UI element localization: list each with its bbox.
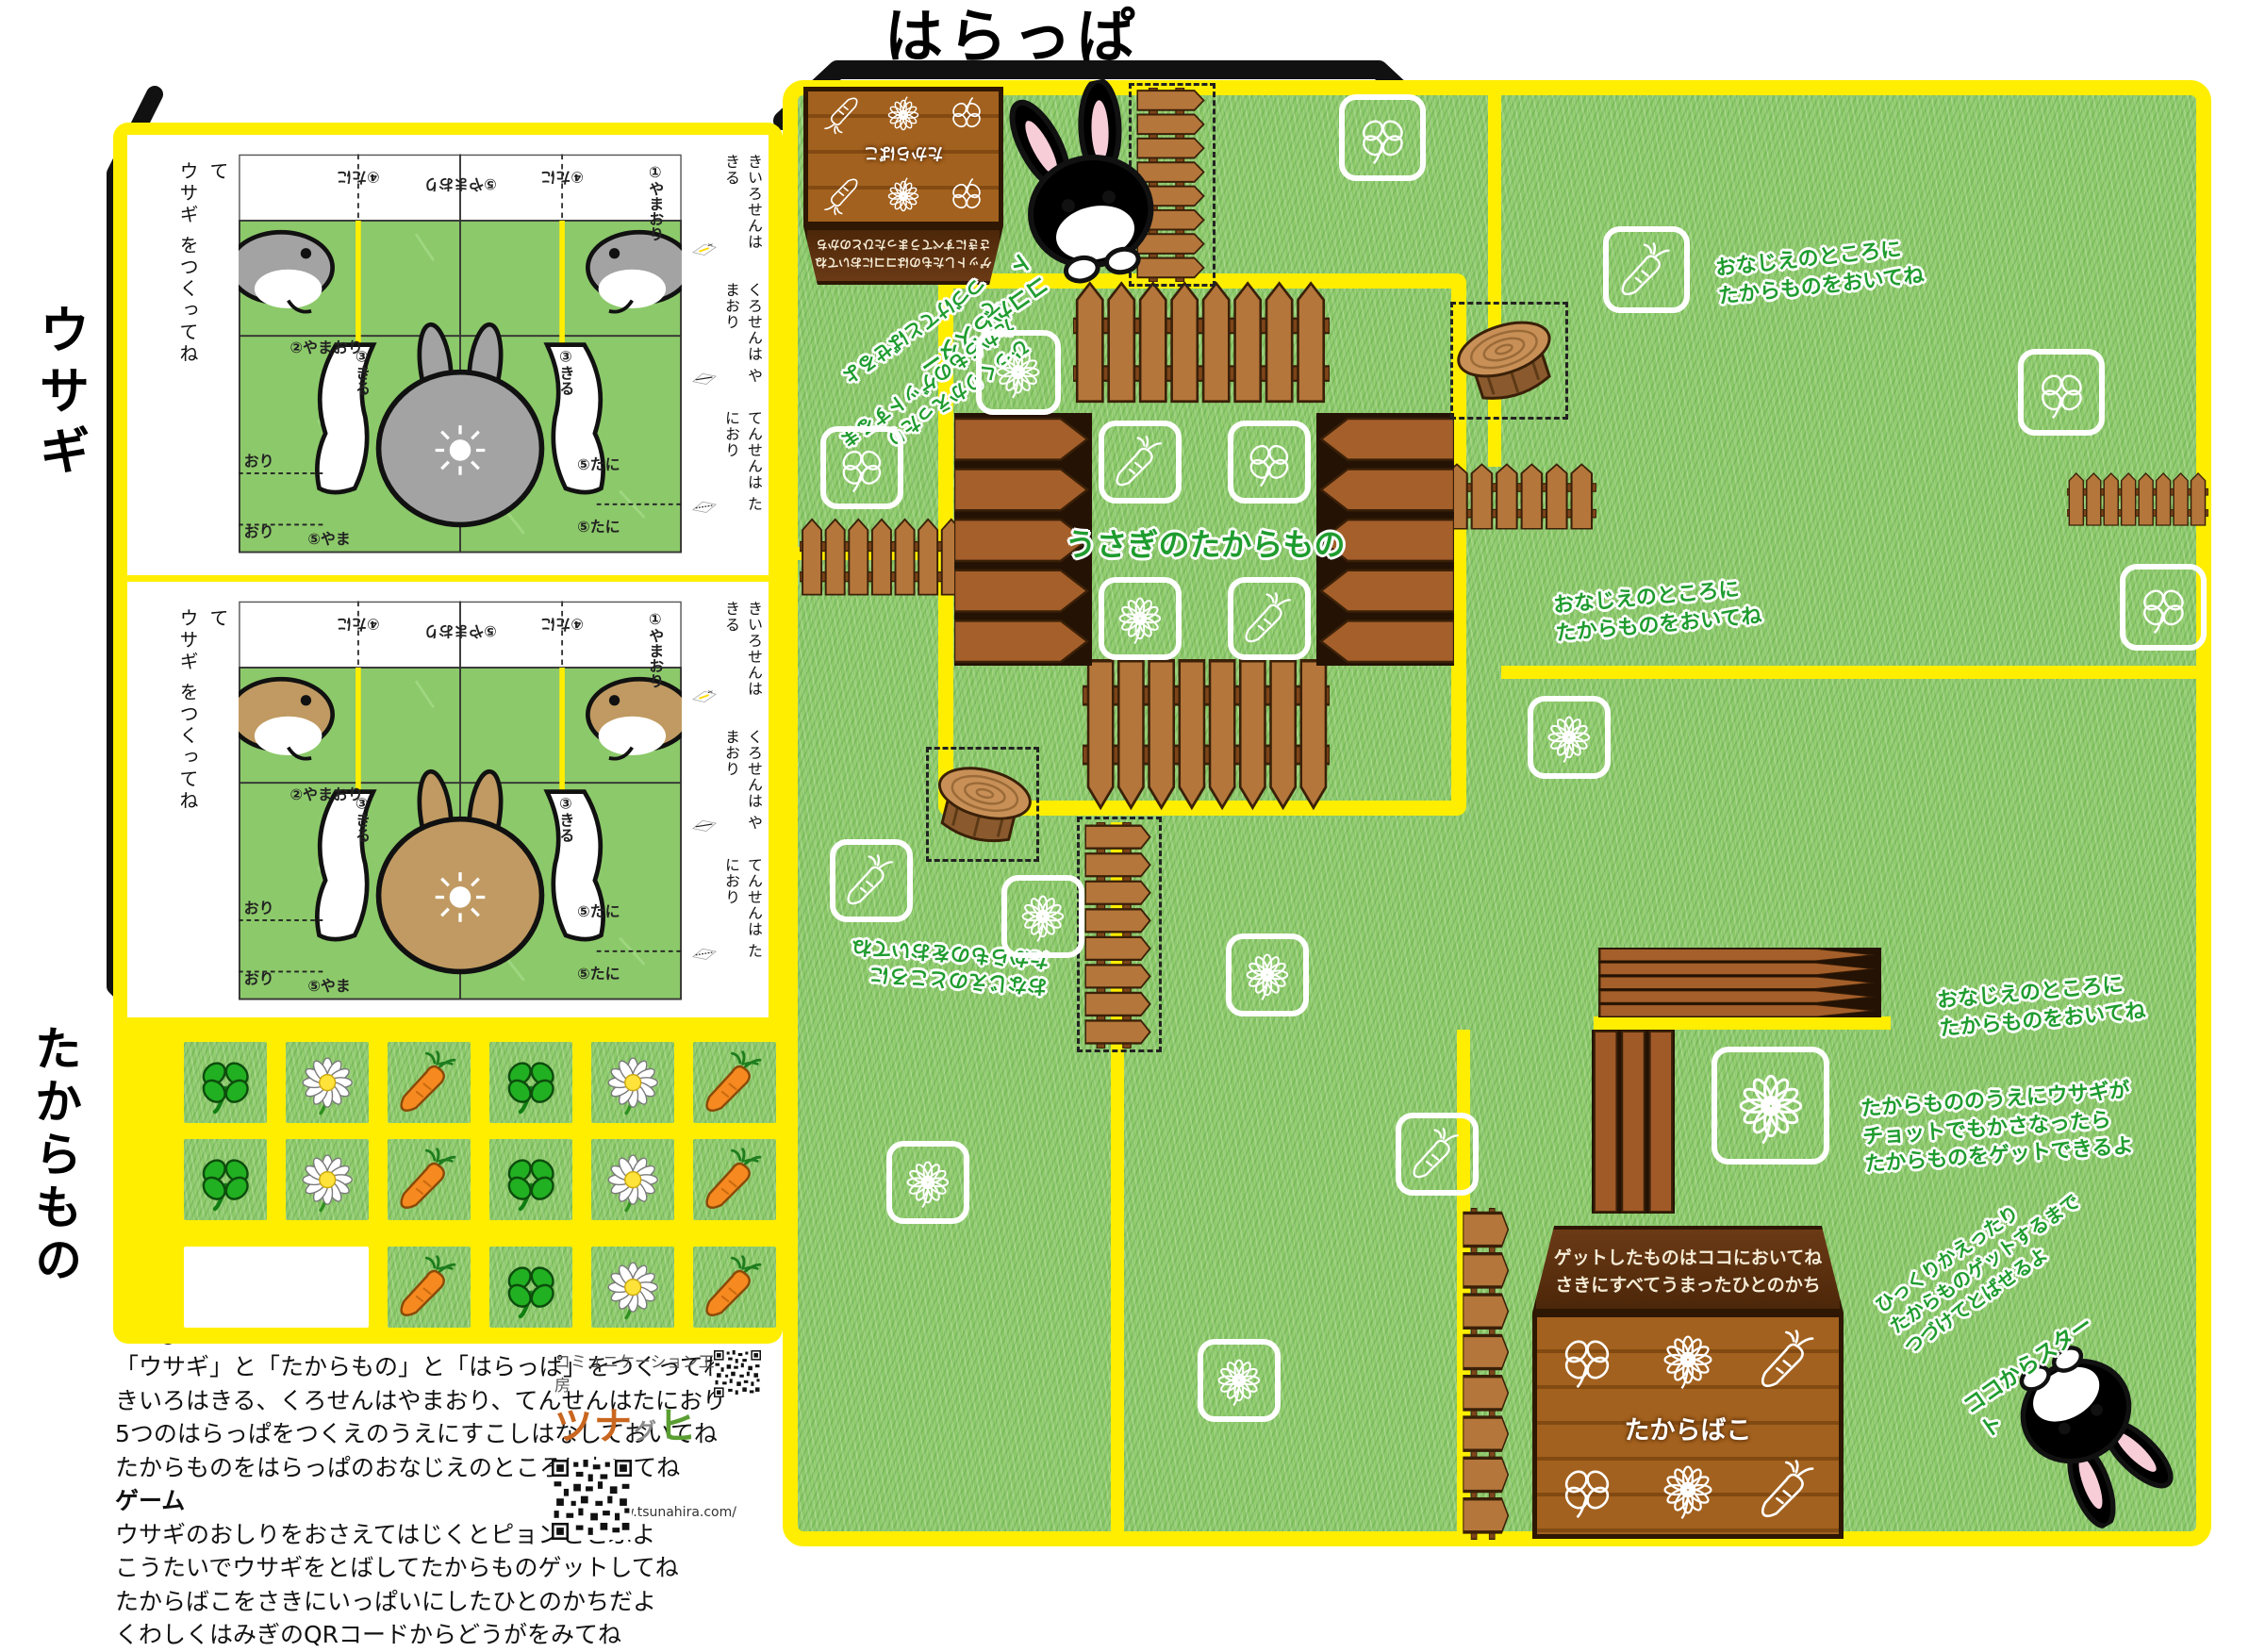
- treasure-spot-clover: [2018, 349, 2105, 436]
- svg-text:①やまおり: ①やまおり: [646, 610, 664, 688]
- fold-legend-item: てんせんは たにおり: [691, 857, 765, 968]
- svg-text:⑤やま: ⑤やま: [307, 977, 350, 995]
- treasure-box-lid: ゲットしたものはココにおいてね さきにすべてうまったひとのかち: [1532, 1226, 1844, 1313]
- carrot-outline-icon: [1410, 1127, 1464, 1181]
- clover-outline-icon: [1242, 435, 1297, 489]
- usagi-side-label: ウサギ: [23, 304, 97, 485]
- game-instruction: たからばこをさきにいっぱいにしたひとのかちだよ: [115, 1585, 766, 1619]
- clover-icon: [192, 1146, 258, 1214]
- carrot-outline-icon: [1242, 591, 1297, 646]
- treasure-spot-carrot: [1099, 421, 1182, 504]
- svg-text:④たに: ④たに: [337, 168, 379, 186]
- carrot-outline-icon: [844, 853, 899, 908]
- treasure-box-top: ゲットしたものはココにおいてね さきにすべてうまったひとのかち たからばこ: [803, 83, 1003, 285]
- tile-daisy: [286, 1139, 369, 1220]
- legend-text: てんせんは たにおり: [719, 410, 765, 521]
- carrot-engraving-icon: [1758, 1459, 1820, 1521]
- tile-daisy: [286, 1042, 369, 1123]
- clover-engraving-icon: [947, 95, 986, 135]
- tile-carrot: [388, 1247, 471, 1328]
- carrot-engraving-icon: [820, 95, 860, 135]
- svg-text:③きる: ③きる: [353, 347, 371, 395]
- svg-text:③きる: ③きる: [353, 794, 371, 842]
- treasure-spot-clover: [2120, 564, 2207, 651]
- fold-legend-item: てんせんは たにおり: [691, 410, 765, 521]
- svg-text:⑤やま: ⑤やま: [307, 530, 350, 548]
- svg-text:④たに: ④たに: [337, 615, 379, 633]
- treasure-spot-daisy: [1198, 1339, 1281, 1422]
- tile-carrot: [388, 1042, 471, 1123]
- daisy-outline-icon: [1730, 1066, 1811, 1147]
- daisy-icon: [600, 1049, 666, 1116]
- daisy-icon: [294, 1146, 360, 1214]
- rabbit-cutout-art: ①やまおり ⑤やまおり ④たに ④たに ②やまおり ③きる ③きる ⑤たに ⑤た…: [239, 142, 682, 565]
- studio-name: コミュニケーション工房: [554, 1348, 715, 1396]
- treasure-box-label: たからばこ: [808, 143, 999, 167]
- carrot-icon: [396, 1253, 462, 1321]
- clover-outline-icon: [835, 440, 889, 495]
- clover-icon: [498, 1146, 564, 1214]
- svg-text:⑤たに: ⑤たに: [577, 518, 620, 536]
- tile-clover: [489, 1247, 572, 1328]
- tile-clover: [489, 1139, 572, 1220]
- carrot-outline-icon: [1113, 435, 1167, 489]
- svg-text:おり: おり: [244, 523, 274, 541]
- clover-icon: [498, 1049, 564, 1116]
- svg-text:おり: おり: [244, 899, 274, 917]
- treasure-spot-daisy: [1099, 577, 1182, 660]
- clover-engraving-icon: [947, 176, 986, 216]
- carrot-icon: [702, 1049, 768, 1116]
- fold-legend-item: くろせんは やまおり: [691, 729, 765, 840]
- carrot-icon: [702, 1146, 768, 1214]
- fold-legend-item: きいろせんは きる: [691, 154, 765, 265]
- clover-engraving-icon: [1556, 1459, 1618, 1521]
- clover-icon: [498, 1253, 564, 1321]
- legend-text: きいろせんは きる: [719, 601, 765, 712]
- legend-text: きいろせんは きる: [719, 154, 765, 265]
- valley-fold-icon: [691, 936, 718, 968]
- tile-daisy: [591, 1247, 674, 1328]
- carrot-engraving-icon: [820, 176, 860, 216]
- svg-text:④たに: ④たに: [540, 168, 583, 186]
- clover-outline-icon: [2135, 579, 2192, 636]
- treasure-box-body: たからばこ: [1532, 1313, 1844, 1539]
- daisy-outline-icon: [990, 344, 1046, 400]
- carrot-icon: [396, 1146, 462, 1214]
- fold-legend: きいろせんは きるくろせんは やまおりてんせんは たにおり: [691, 154, 765, 559]
- daisy-engraving-icon: [884, 176, 923, 216]
- board-separator: [1501, 666, 2199, 679]
- tile-daisy: [591, 1139, 674, 1220]
- carrot-icon: [702, 1253, 768, 1321]
- treasure-box-bottom: ゲットしたものはココにおいてね さきにすべてうまったひとのかち たからばこ: [1532, 1226, 1844, 1542]
- svg-text:⑤たに: ⑤たに: [577, 965, 620, 983]
- mountain-fold-icon: [691, 808, 718, 840]
- treasure-spot-clover: [1339, 94, 1426, 181]
- courtyard-top-fence: [1073, 279, 1330, 404]
- tile-clover: [184, 1139, 267, 1220]
- valley-fold-icon: [691, 489, 718, 521]
- fold-legend: きいろせんは きるくろせんは やまおりてんせんは たにおり: [691, 601, 765, 1006]
- svg-text:⑤たに: ⑤たに: [577, 455, 620, 473]
- daisy-outline-icon: [1542, 710, 1596, 765]
- tile-carrot: [388, 1139, 471, 1220]
- clover-icon: [192, 1049, 258, 1116]
- svg-text:⑤たに: ⑤たに: [577, 902, 620, 920]
- treasure-spot-carrot: [1603, 226, 1690, 313]
- fence-bottom-right-horizontal: [1598, 948, 1881, 1017]
- clover-engraving-icon: [1556, 1329, 1618, 1391]
- fence-far-right: [2067, 471, 2208, 526]
- treasure-spot-carrot: [1396, 1113, 1479, 1196]
- treasure-box-body: たからばこ: [803, 87, 1003, 226]
- svg-text:③きる: ③きる: [556, 347, 574, 395]
- tile-blank: [184, 1247, 369, 1328]
- treasure-spot-carrot: [1228, 577, 1311, 660]
- svg-text:おり: おり: [244, 452, 274, 470]
- carrot-icon: [396, 1049, 462, 1116]
- daisy-outline-icon: [901, 1155, 955, 1210]
- tile-carrot: [693, 1247, 776, 1328]
- treasure-spot-daisy: [1226, 933, 1309, 1016]
- cut-outline: [1077, 817, 1162, 1052]
- treasure-box-label: たからばこ: [1537, 1410, 1839, 1446]
- cut-line-icon: [691, 233, 718, 265]
- daisy-engraving-icon: [1657, 1329, 1719, 1391]
- qr-code: [714, 1350, 761, 1397]
- courtyard-bottom-fence: [1083, 658, 1330, 813]
- legend-text: くろせんは やまおり: [719, 729, 765, 840]
- legend-text: てんせんは たにおり: [719, 857, 765, 968]
- treasure-spot-daisy: [1528, 696, 1611, 779]
- cut-line-icon: [691, 680, 718, 712]
- game-instruction: ウサギのおしりをおさえてはじくとピョンととぶよ: [115, 1518, 766, 1552]
- takaramono-side-label: たからもの: [21, 1024, 89, 1288]
- fence-bottom-right-vertical: [1592, 1030, 1675, 1214]
- daisy-outline-icon: [1212, 1353, 1266, 1408]
- treasure-spot-clover: [820, 426, 903, 509]
- tile-clover: [184, 1042, 267, 1123]
- svg-text:④たに: ④たに: [540, 615, 583, 633]
- carrot-engraving-icon: [1758, 1329, 1820, 1391]
- svg-text:①やまおり: ①やまおり: [646, 163, 664, 241]
- treasure-spot-daisy: [1712, 1047, 1829, 1165]
- treasure-spot-daisy: [1001, 875, 1084, 958]
- treasure-spot-carrot: [830, 839, 913, 922]
- tile-daisy: [591, 1042, 674, 1123]
- treasure-spot-daisy: [886, 1141, 969, 1224]
- daisy-icon: [600, 1253, 666, 1321]
- mountain-fold-icon: [691, 361, 718, 393]
- daisy-icon: [600, 1146, 666, 1214]
- daisy-outline-icon: [1113, 591, 1167, 646]
- legend-text: くろせんは やまおり: [719, 282, 765, 393]
- daisy-outline-icon: [1016, 889, 1070, 944]
- rabbit-template-gray: ばんごうのじゅんにきったりおったりして ウサギ をつくってね: [127, 135, 769, 575]
- daisy-engraving-icon: [1657, 1459, 1719, 1521]
- svg-text:おり: おり: [244, 970, 274, 988]
- svg-text:⑤やまおり: ⑤やまおり: [423, 175, 496, 193]
- page-title: はらっぱ: [885, 0, 1141, 74]
- tile-carrot: [693, 1042, 776, 1123]
- daisy-outline-icon: [1240, 948, 1295, 1002]
- tile-clover: [489, 1042, 572, 1123]
- clover-outline-icon: [2033, 364, 2091, 421]
- clover-outline-icon: [1354, 109, 1412, 167]
- carrot-outline-icon: [1618, 241, 1676, 299]
- tile-carrot: [693, 1139, 776, 1220]
- game-instruction: くわしくはみぎのQRコードからどうがをみてね: [115, 1618, 766, 1652]
- fence-left-of-treasure-box: [1463, 1208, 1510, 1540]
- rabbit-template-brown: ばんごうのじゅんにきったりおったりして ウサギ をつくってね: [127, 582, 769, 1017]
- rabbit-cutout-art: ①やまおり ⑤やまおり ④たに ④たに ②やまおり ③きる ③きる ⑤たに ⑤た…: [239, 589, 682, 1012]
- svg-text:③きる: ③きる: [556, 794, 574, 842]
- svg-text:⑤やまおり: ⑤やまおり: [423, 622, 496, 640]
- treasure-spot-clover: [1228, 421, 1311, 504]
- fold-legend-item: きいろせんは きる: [691, 601, 765, 712]
- board-separator: [1594, 1016, 1891, 1030]
- game-instruction: こうたいでウサギをとばしてたからものゲットしてね: [115, 1551, 766, 1585]
- treasure-spot-daisy: [976, 330, 1061, 415]
- fold-legend-item: くろせんは やまおり: [691, 282, 765, 393]
- daisy-engraving-icon: [884, 95, 923, 135]
- qr-code: [552, 1460, 632, 1540]
- daisy-icon: [294, 1049, 360, 1116]
- board-center-title: うさぎのたからもの: [1064, 524, 1347, 567]
